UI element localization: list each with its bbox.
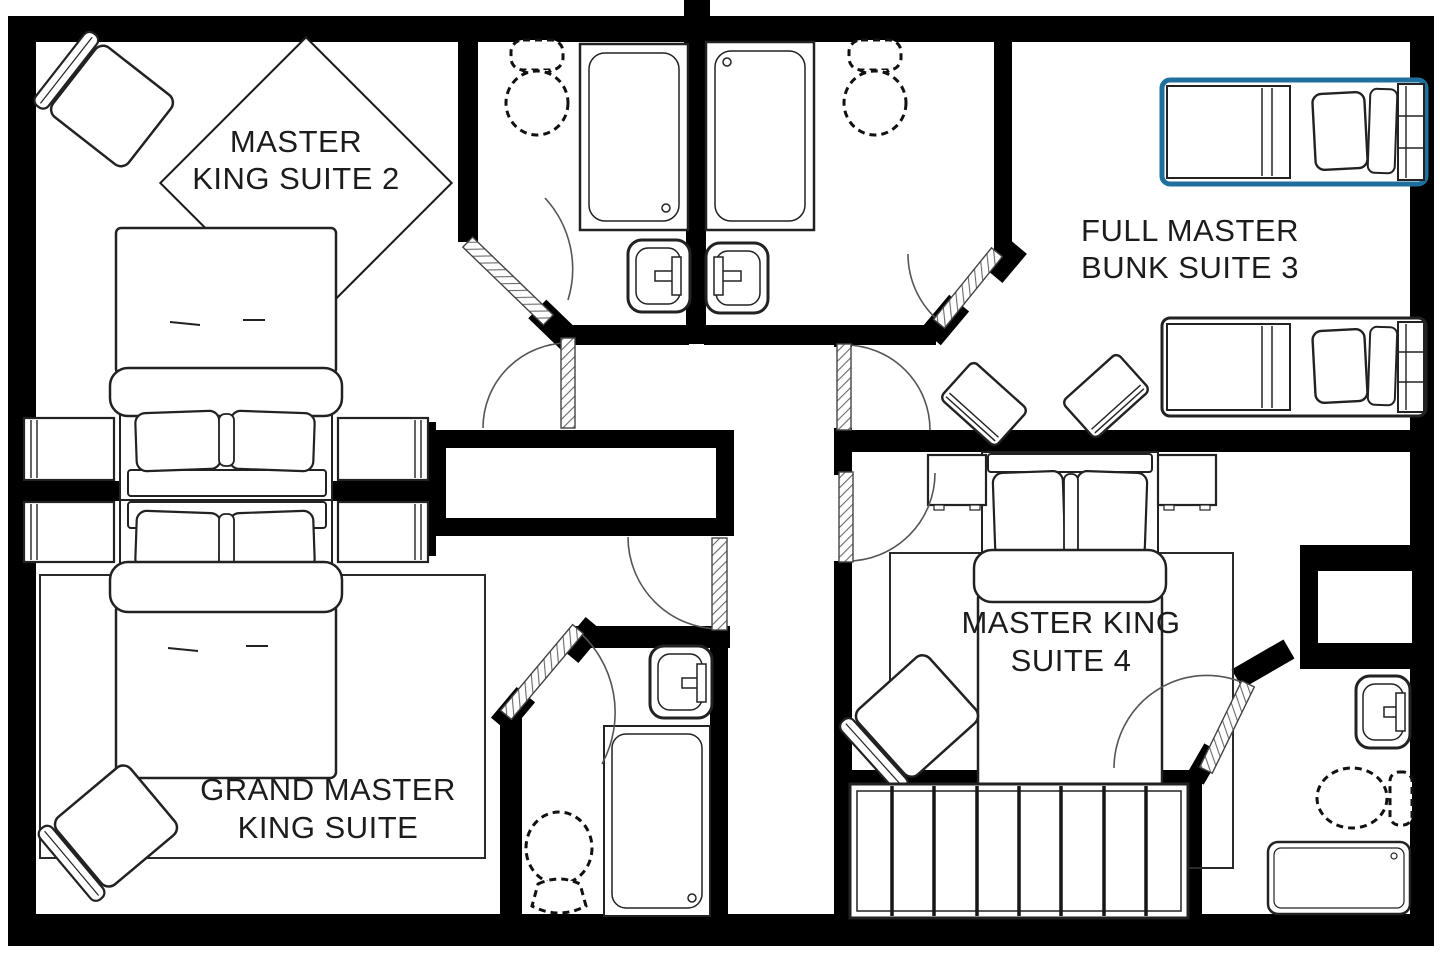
bath1-shower — [580, 44, 688, 230]
label-master-king-suite-2-line1: MASTER — [230, 124, 362, 159]
bunk-bed-bottom — [1162, 318, 1426, 416]
door-bath1 — [463, 198, 573, 325]
bath3-shower — [604, 726, 710, 916]
closet-suite4-inner — [1318, 571, 1412, 643]
label-master-king-suite-4-line1: MASTER KING — [961, 605, 1180, 640]
bed-pillow-right — [1075, 471, 1148, 557]
bath3-toilet — [526, 812, 592, 913]
door-suite2-hall — [483, 338, 575, 428]
bath4-toilet — [1317, 768, 1412, 828]
toilet-bowl — [526, 812, 592, 884]
grand-master-king-bed — [110, 500, 342, 778]
wall-suite2-east — [458, 42, 478, 242]
label-master-king-suite-2-line2: KING SUITE 2 — [192, 161, 400, 196]
floor-plan-page: MASTER KING SUITE 2 FULL MASTER BUNK SUI… — [0, 0, 1440, 960]
shower-pan — [706, 42, 814, 230]
suite4-nightstand-right — [1158, 455, 1216, 510]
bed-headboard — [988, 454, 1152, 472]
suite2-nightstand-right — [338, 418, 428, 480]
shower-pan — [604, 726, 710, 916]
bed-headboard — [1398, 322, 1424, 412]
suite4-nightstand-left — [928, 455, 986, 510]
bath2-toilet — [844, 40, 906, 135]
tub-outline — [1268, 842, 1410, 914]
toilet-bowl — [844, 71, 906, 135]
bed-pillow-center — [219, 514, 234, 566]
sink-faucet-bar — [672, 257, 681, 295]
wall-suite3-west — [994, 42, 1012, 264]
bath3-sink — [650, 646, 712, 718]
slatted-wardrobe — [850, 784, 1188, 918]
sink-faucet-bar — [1396, 693, 1405, 731]
wall-hall-east-b — [834, 428, 852, 475]
toilet-base — [532, 879, 586, 913]
bed-pillow — [1312, 92, 1368, 171]
wall-bath2-south — [704, 325, 936, 345]
suite2-armchair — [32, 29, 178, 172]
bath2-shower — [706, 42, 814, 230]
suite2-king-bed — [110, 228, 342, 500]
sink-faucet-bar — [714, 257, 723, 295]
grand-master-armchair — [36, 760, 182, 904]
shower-pan — [580, 44, 688, 230]
wall-top-stub — [684, 0, 710, 44]
bed-headboard — [128, 470, 326, 496]
label-grand-master-king-suite-line2: KING SUITE — [238, 810, 419, 845]
bed-pillow-2 — [1368, 89, 1398, 174]
bed-headboard — [1398, 84, 1424, 180]
label-grand-master-king-suite-line1: GRAND MASTER — [200, 772, 456, 807]
toilet-tank — [1390, 772, 1412, 825]
bed-duvet — [116, 228, 336, 374]
toilet-bowl — [1317, 768, 1387, 828]
door-suite4 — [839, 472, 935, 562]
grand-master-nightstand-right — [338, 502, 428, 562]
bath1-toilet — [506, 40, 568, 135]
bed-pillow-center — [1064, 474, 1078, 554]
bath2-sink — [706, 243, 768, 313]
bed-pillow-left — [135, 411, 221, 472]
bed-duvet — [116, 604, 336, 778]
bunk-bed-top-highlighted — [1162, 80, 1426, 184]
bed-pillow — [1312, 329, 1368, 404]
bed-pillow-center — [219, 414, 234, 466]
floor-plan-image: MASTER KING SUITE 2 FULL MASTER BUNK SUI… — [0, 0, 1440, 960]
label-master-king-suite-4-line2: SUITE 4 — [1011, 643, 1132, 678]
bath1-sink — [628, 240, 690, 312]
suite2-nightstand-left — [24, 418, 114, 480]
label-full-master-bunk-suite-3-line2: BUNK SUITE 3 — [1081, 250, 1299, 285]
label-full-master-bunk-suite-3-line1: FULL MASTER — [1081, 213, 1299, 248]
toilet-bowl — [506, 71, 568, 135]
closet-hall-inner — [446, 448, 716, 518]
bed-fold — [110, 368, 342, 416]
bed-fold — [110, 562, 342, 612]
bed-fold — [974, 550, 1166, 602]
wall-bath3-west — [500, 716, 522, 916]
bed-pillow-left — [993, 471, 1066, 557]
toilet-tank — [849, 40, 901, 70]
wall-outer-bottom — [8, 914, 1434, 946]
bath4-sink — [1356, 676, 1410, 748]
door-hall-suite3 — [837, 344, 930, 430]
wall-outer-top — [8, 16, 1434, 42]
wall-bath1-south — [572, 325, 689, 345]
door-hall-grand-master — [628, 537, 727, 630]
toilet-tank — [511, 40, 563, 70]
sink-faucet-bar — [697, 664, 706, 702]
bath4-bathtub — [1268, 842, 1410, 914]
bed-pillow-right — [229, 411, 315, 472]
suite3-bench-right — [1062, 353, 1150, 440]
grand-master-nightstand-left — [24, 502, 114, 562]
bed-pillow-2 — [1368, 327, 1398, 406]
wall-suite3-suite4 — [852, 430, 1412, 452]
